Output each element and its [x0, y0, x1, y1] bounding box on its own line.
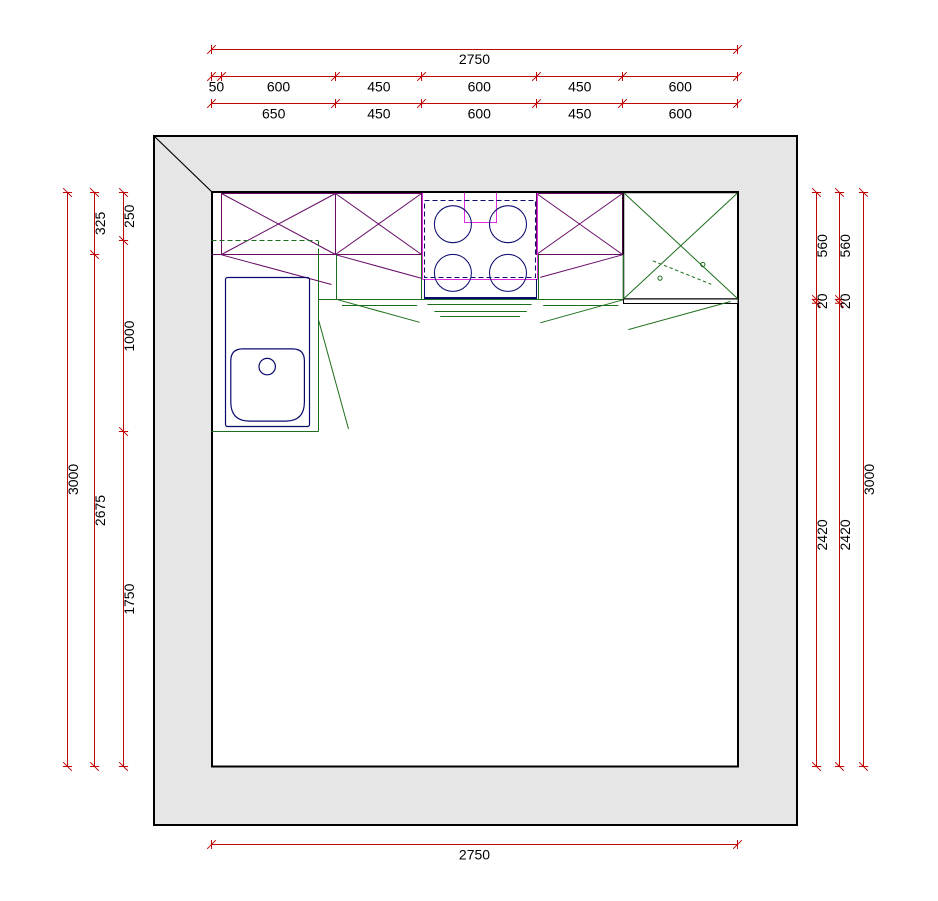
svg-text:20: 20 [837, 293, 853, 309]
svg-text:650: 650 [262, 105, 286, 121]
svg-text:250: 250 [121, 204, 137, 228]
svg-text:2675: 2675 [92, 495, 108, 526]
svg-text:450: 450 [367, 105, 391, 121]
svg-text:325: 325 [92, 212, 108, 236]
svg-text:2750: 2750 [459, 51, 490, 67]
svg-text:600: 600 [267, 78, 291, 94]
svg-text:1750: 1750 [121, 583, 137, 614]
svg-text:450: 450 [568, 78, 592, 94]
svg-text:3000: 3000 [65, 464, 81, 495]
svg-text:560: 560 [814, 234, 830, 258]
svg-text:560: 560 [837, 234, 853, 258]
svg-text:20: 20 [814, 293, 830, 309]
svg-text:600: 600 [468, 105, 492, 121]
svg-text:450: 450 [367, 78, 391, 94]
svg-text:1000: 1000 [121, 320, 137, 351]
svg-text:2420: 2420 [814, 519, 830, 550]
svg-text:600: 600 [669, 78, 693, 94]
svg-text:2750: 2750 [459, 847, 490, 863]
svg-text:600: 600 [468, 78, 492, 94]
svg-text:2420: 2420 [837, 519, 853, 550]
svg-text:600: 600 [669, 105, 693, 121]
svg-text:50: 50 [209, 78, 225, 94]
svg-text:450: 450 [568, 105, 592, 121]
svg-text:3000: 3000 [861, 464, 877, 495]
